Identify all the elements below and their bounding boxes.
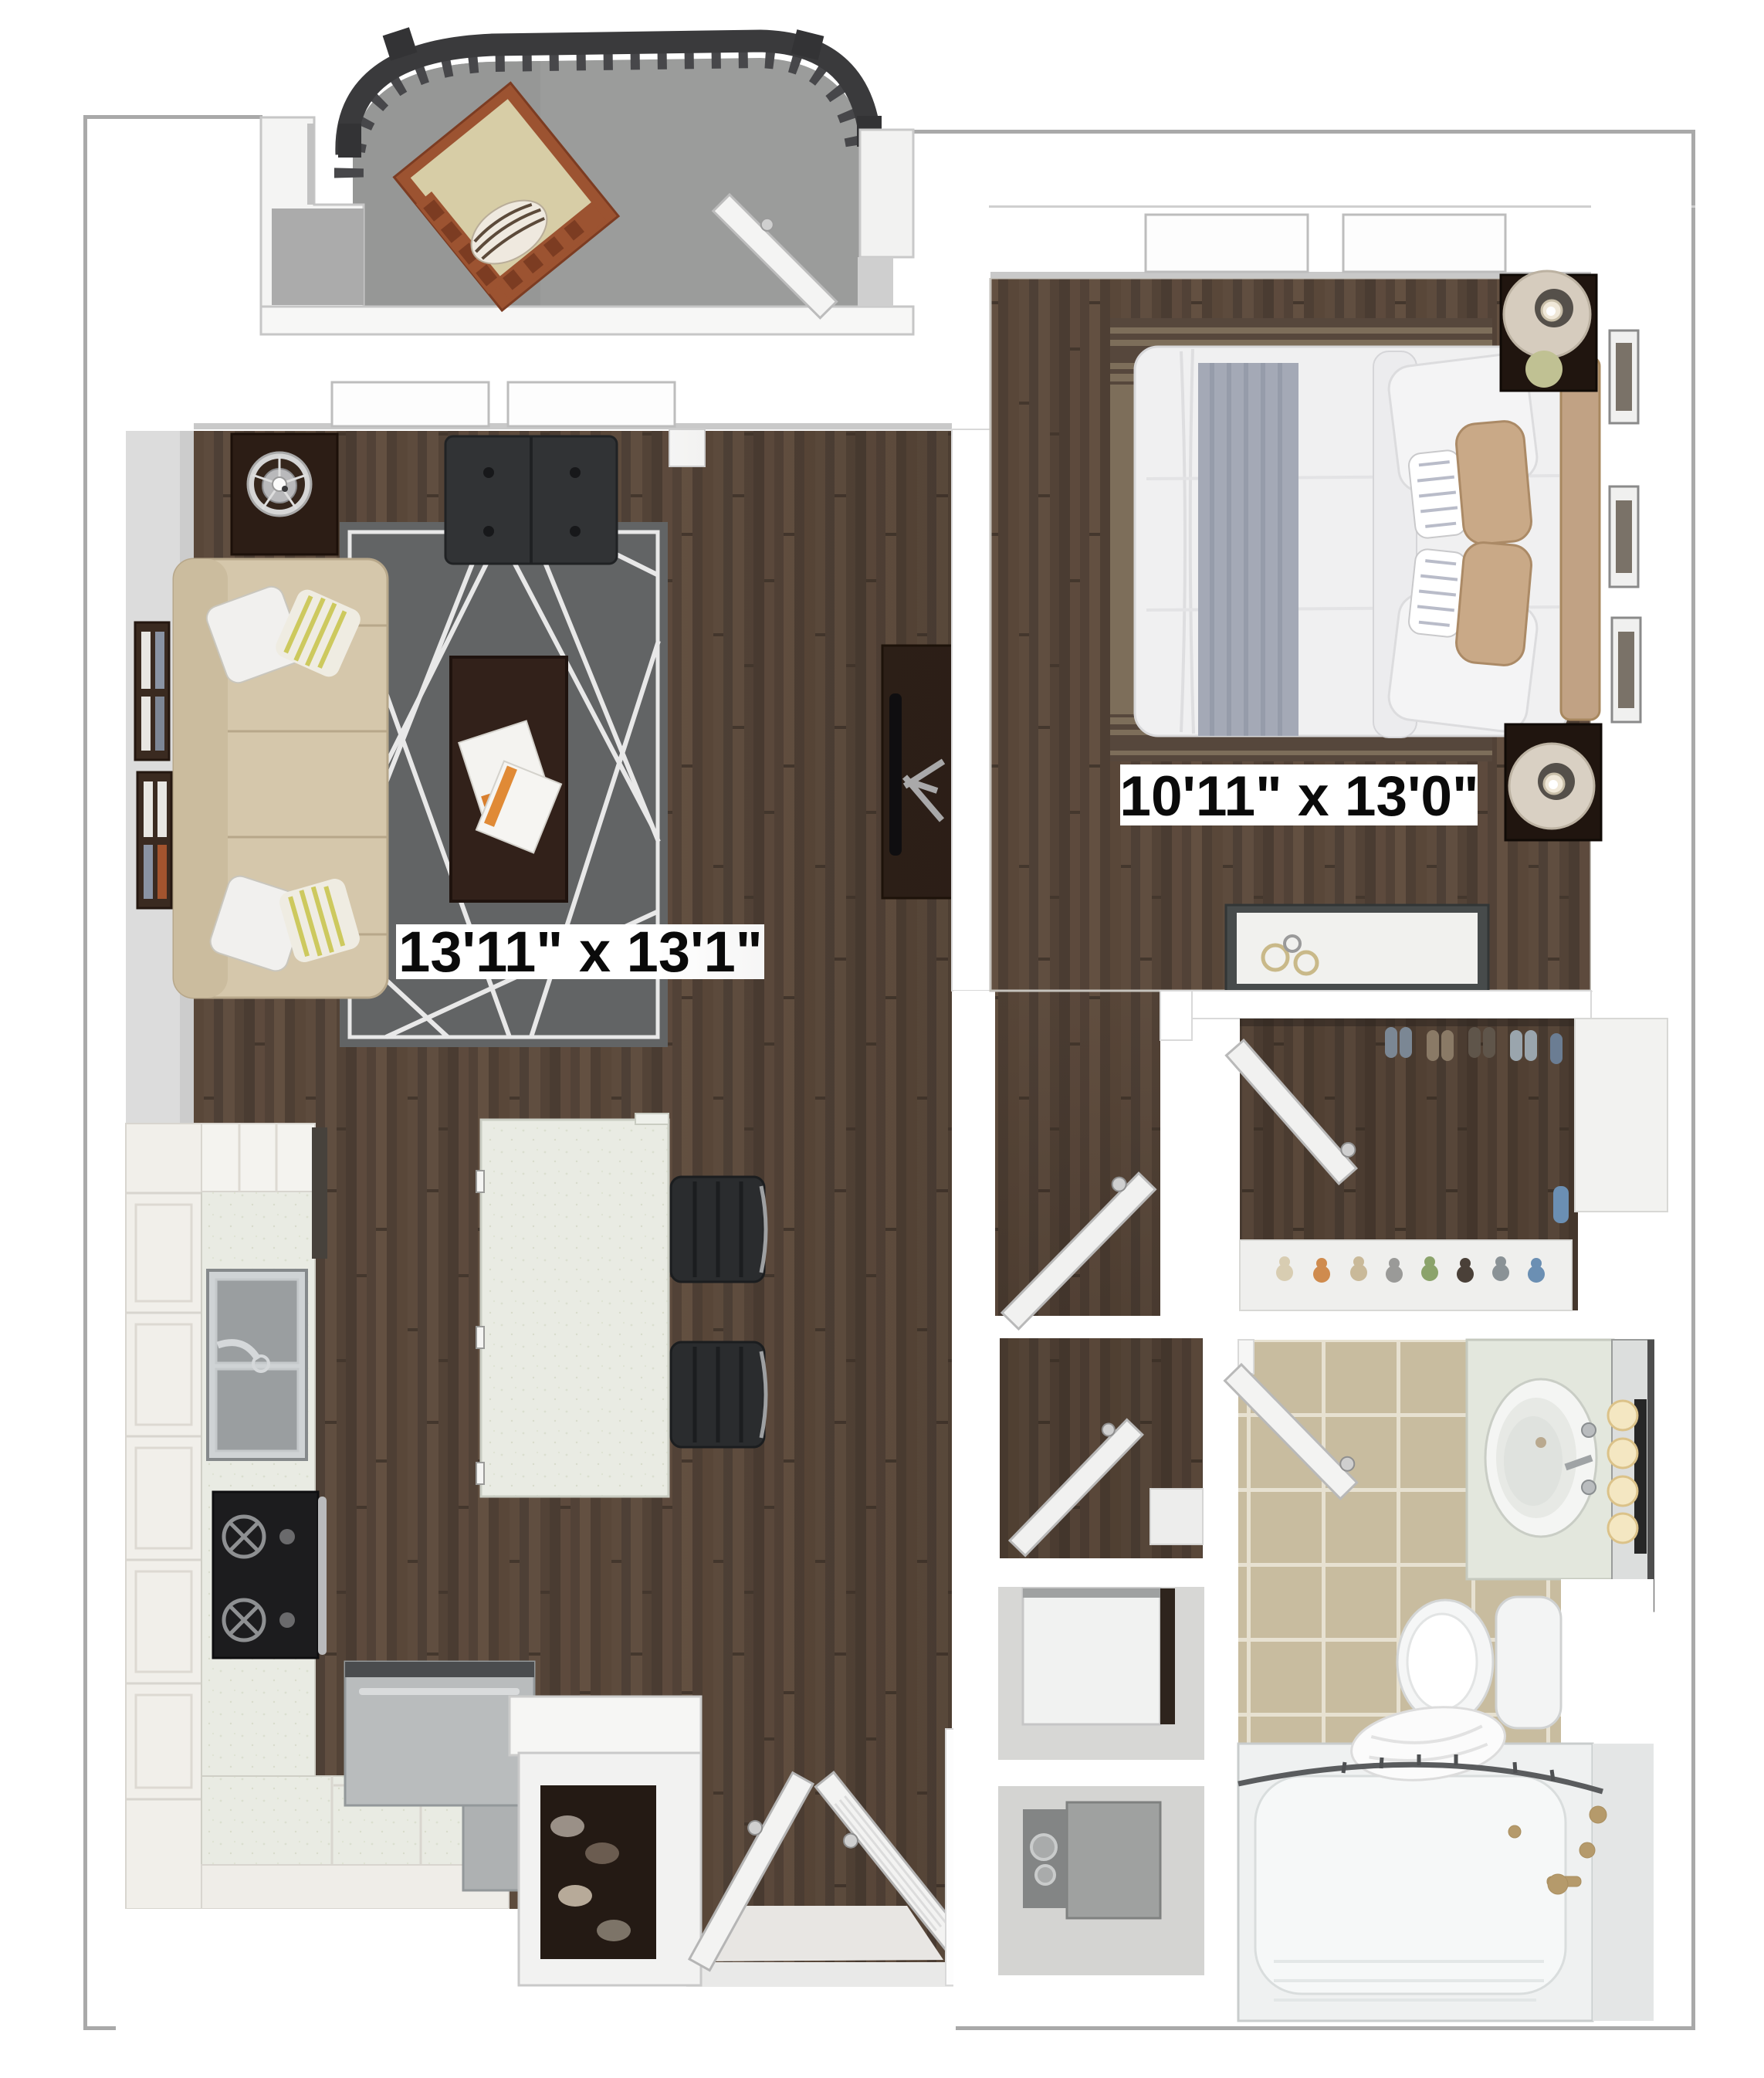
svg-text:10'11" x 13'0": 10'11" x 13'0" <box>1119 765 1478 828</box>
